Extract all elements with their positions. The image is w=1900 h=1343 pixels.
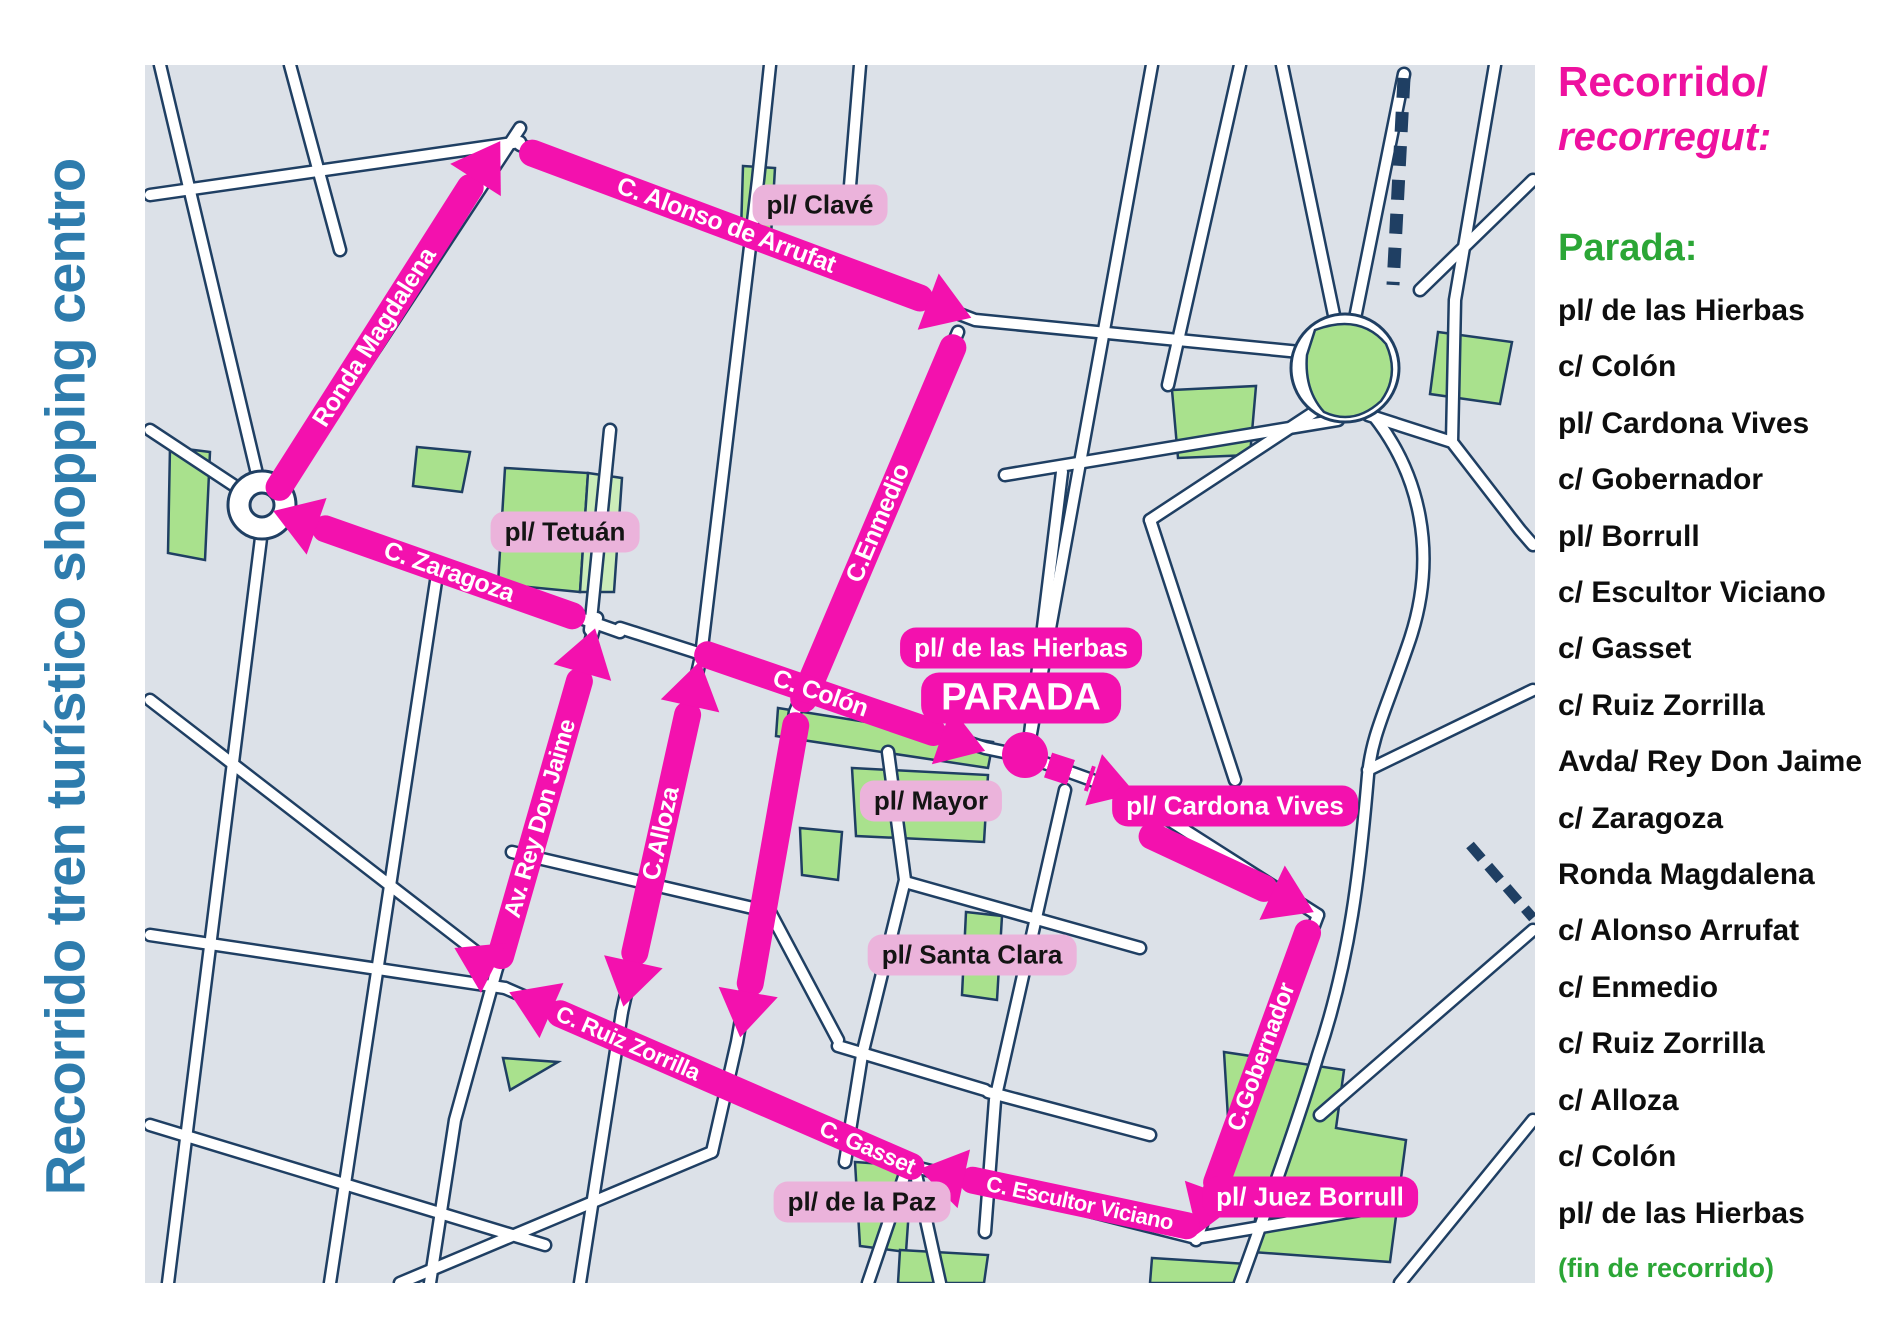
route-ronda-magdalena: Ronda Magdalena (261, 169, 489, 506)
sidebar: Recorrido/ recorregut: Parada: pl/ de la… (1558, 0, 1900, 1343)
list-item: pl/ de las Hierbas (1558, 1186, 1900, 1242)
route-enmedio-lower (735, 710, 812, 998)
list-item: c/ Colón (1558, 339, 1900, 395)
route-heading-catalan: recorregut: (1558, 116, 1771, 158)
list-item: pl/ de las Hierbas (1558, 283, 1900, 339)
list-item: c/ Ruiz Zorrilla (1558, 678, 1900, 734)
street-label: C. Ruiz Zorrilla (552, 1000, 704, 1086)
plaza-badge-clave: pl/ Clavé (753, 185, 888, 226)
street-label: Ronda Magdalena (307, 243, 442, 433)
route-cardona-link (1134, 818, 1281, 906)
plaza-badge-de-la-paz: pl/ de la Paz (774, 1182, 951, 1223)
stop-badge-juez-borrull: pl/ Juez Borrull (1202, 1177, 1418, 1218)
page-title: Recorrido tren turístico shopping centro (9, 60, 123, 1295)
route-gobernador: C.Gobernador (1199, 916, 1324, 1200)
stop-badge-cardona-vives: pl/ Cardona Vives (1112, 786, 1358, 827)
stop-badge-parada: PARADA (921, 673, 1121, 724)
list-item: c/ Ruiz Zorrilla (1558, 1016, 1900, 1072)
city-map: Ronda Magdalena C. Alonso de Arrufat C.E… (145, 65, 1535, 1283)
list-item: c/ Gobernador (1558, 452, 1900, 508)
street-label: C.Enmedio (840, 460, 916, 587)
plaza-badge-tetuan: pl/ Tetuán (491, 512, 640, 553)
arrowhead-icon (711, 987, 778, 1043)
stops-heading: Parada: (1558, 228, 1697, 268)
list-item: c/ Zaragoza (1558, 791, 1900, 847)
stop-badge-hierbas: pl/ de las Hierbas (900, 628, 1142, 669)
list-item: c/ Gasset (1558, 621, 1900, 677)
route-parada-connector (1044, 753, 1096, 792)
list-item: Avda/ Rey Don Jaime (1558, 734, 1900, 790)
list-item: c/ Enmedio (1558, 960, 1900, 1016)
route-layer: Ronda Magdalena C. Alonso de Arrufat C.E… (145, 65, 1535, 1283)
street-label: Av. Rey Don Jaime (498, 716, 581, 921)
arrowhead-icon (553, 620, 623, 681)
route-heading: Recorrido/ (1558, 60, 1768, 104)
list-item: c/ Escultor Viciano (1558, 565, 1900, 621)
route-rey-don-jaime: Av. Rey Don Jaime (484, 665, 596, 972)
list-item: c/ Alonso Arrufat (1558, 903, 1900, 959)
plaza-badge-santa-clara: pl/ Santa Clara (868, 935, 1077, 976)
street-label: C.Alloza (637, 784, 686, 883)
arrowhead-icon (594, 955, 663, 1013)
arrowhead-icon (450, 125, 525, 196)
parada-stop-dot (1002, 732, 1048, 778)
list-item: c/ Alloza (1558, 1073, 1900, 1129)
list-item: c/ Colón (1558, 1129, 1900, 1185)
plaza-badge-mayor: pl/ Mayor (860, 781, 1002, 822)
arrowhead-icon (498, 964, 564, 1037)
street-label: C. Gasset (815, 1115, 919, 1180)
list-item: pl/ Borrull (1558, 509, 1900, 565)
list-item: pl/ Cardona Vives (1558, 396, 1900, 452)
stops-list: pl/ de las Hierbas c/ Colón pl/ Cardona … (1558, 283, 1900, 1294)
route-escultor-viciano: C. Escultor Viciano (957, 1164, 1202, 1241)
route-alonso-arrufat: C. Alonso de Arrufat (515, 136, 937, 315)
end-of-route-note: (fin de recorrido) (1558, 1242, 1900, 1294)
street-label: C. Escultor Viciano (984, 1170, 1176, 1235)
route-alloza: C.Alloza (619, 699, 704, 968)
list-item: Ronda Magdalena (1558, 847, 1900, 903)
street-label: C.Gobernador (1222, 980, 1301, 1136)
